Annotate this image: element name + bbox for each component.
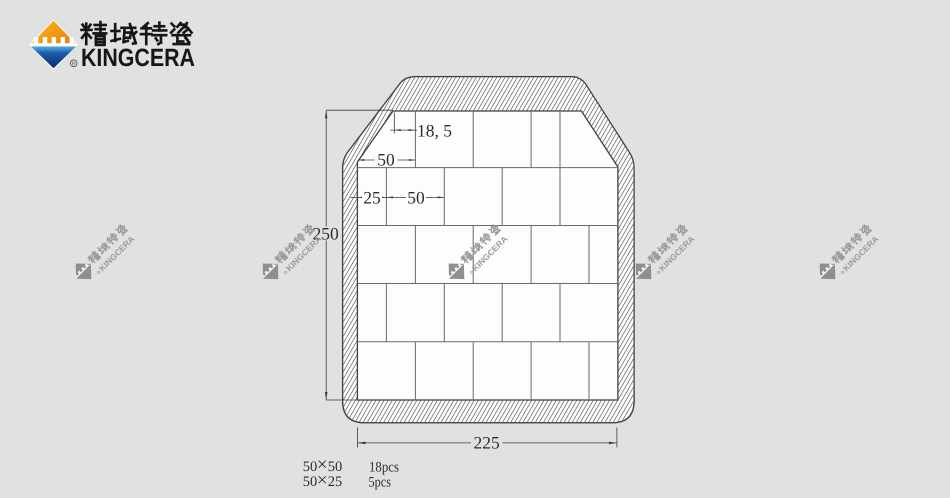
svg-text:5pcs: 5pcs xyxy=(369,475,392,491)
svg-text:50: 50 xyxy=(303,459,318,475)
svg-text:225: 225 xyxy=(473,433,500,453)
svg-text:25: 25 xyxy=(363,187,381,207)
svg-text:50: 50 xyxy=(407,187,425,207)
svg-text:25: 25 xyxy=(328,474,343,490)
svg-text:50: 50 xyxy=(303,474,318,490)
svg-text:×: × xyxy=(317,470,328,491)
svg-text:18pcs: 18pcs xyxy=(369,459,399,475)
svg-text:18, 5: 18, 5 xyxy=(417,121,452,141)
svg-text:50: 50 xyxy=(377,149,395,169)
svg-text:50: 50 xyxy=(328,459,343,475)
svg-text:R: R xyxy=(72,62,76,68)
svg-text:KINGCERA: KINGCERA xyxy=(81,44,195,72)
